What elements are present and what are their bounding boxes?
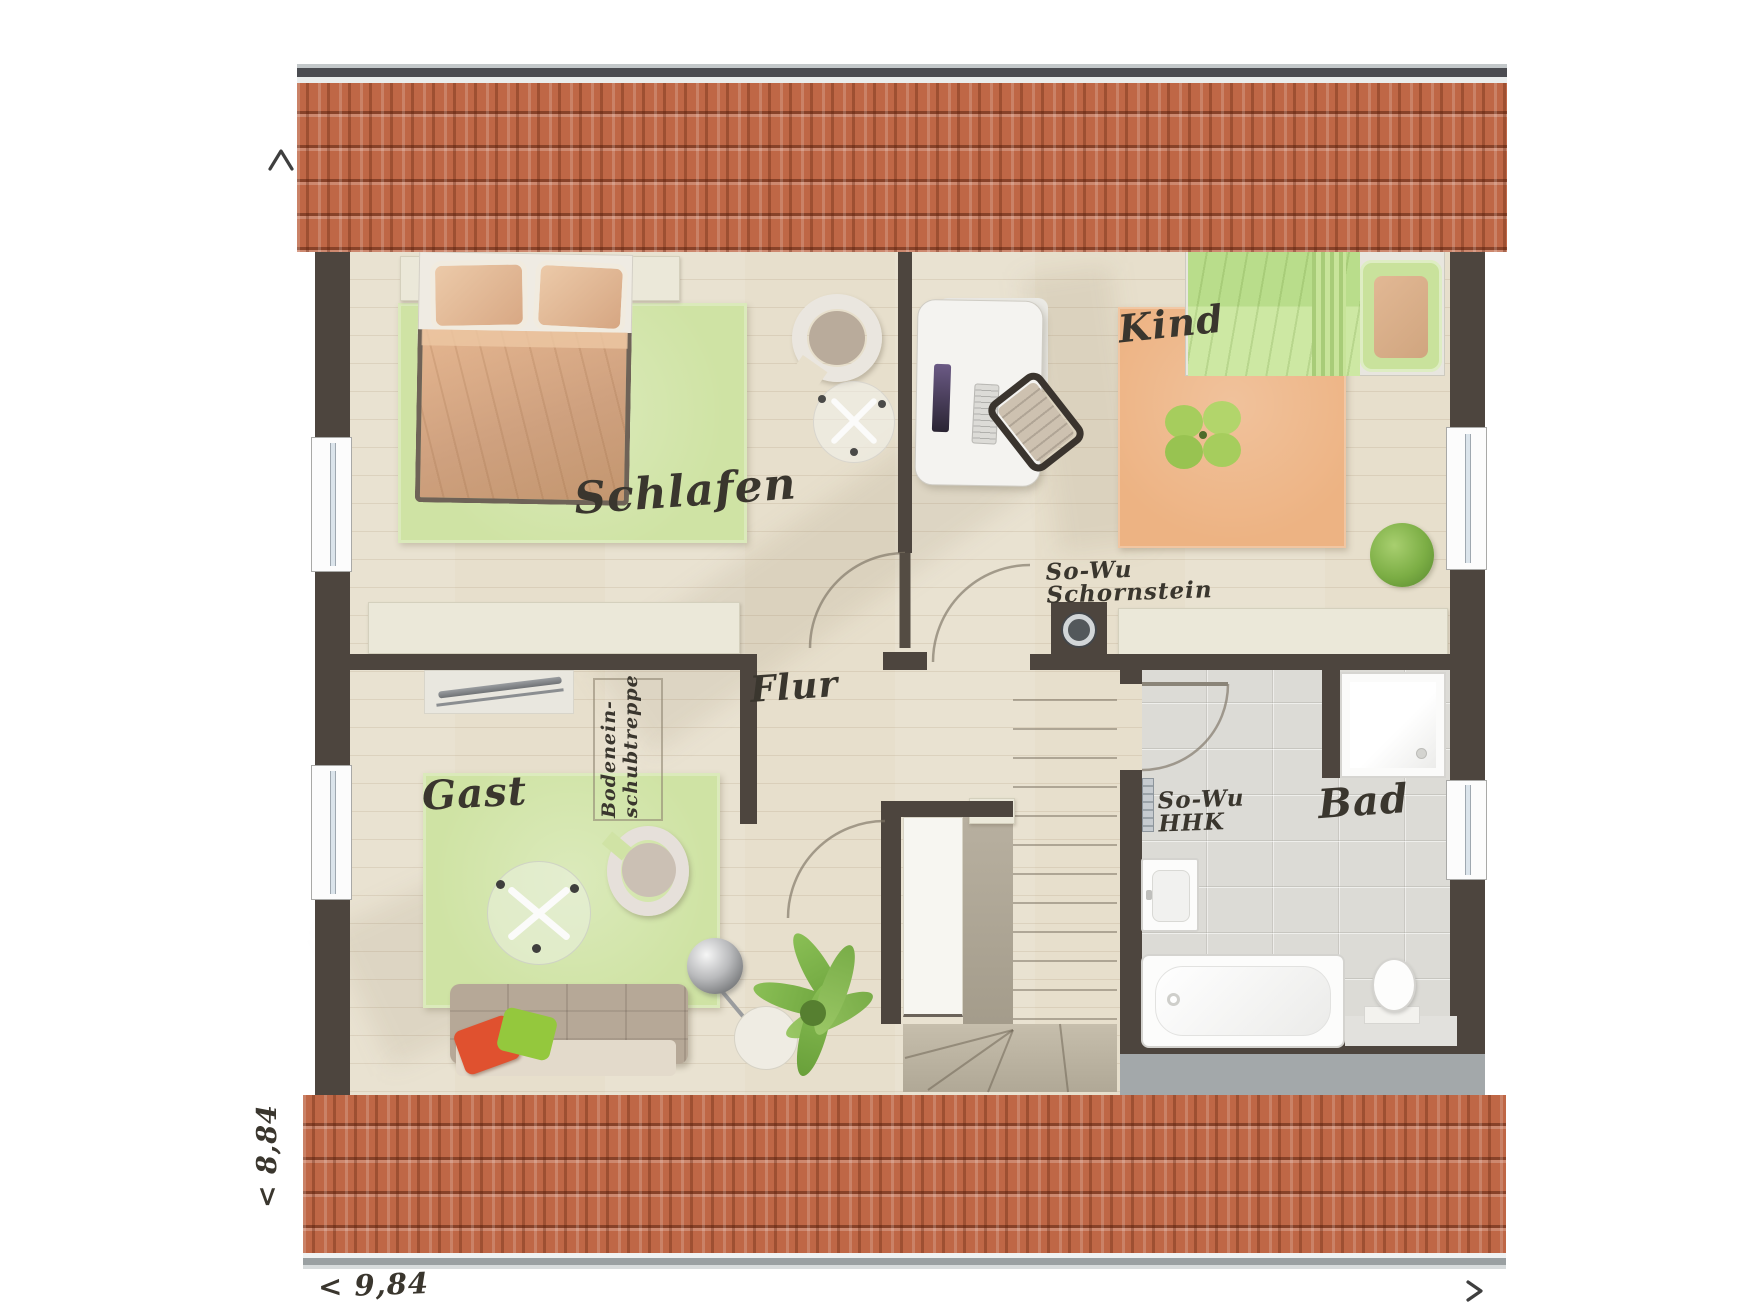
dimension-label-bottom: < 9,84 <box>317 1266 429 1304</box>
winder-line <box>1060 1024 1068 1092</box>
room-label-gast: Gast <box>421 767 528 819</box>
room-label-flur: Flur <box>749 663 840 711</box>
dimension-arrow-right-icon <box>1468 1282 1481 1300</box>
annotation-radiator-line2: HHK <box>1158 809 1246 835</box>
roof-band-top <box>297 64 1507 252</box>
winder-line <box>905 1030 1013 1058</box>
annotation-loft-ladder: Bodenein- schubtreppe <box>598 682 642 818</box>
door-arc-schlafen <box>810 553 905 648</box>
roof-band-bottom <box>303 1095 1506 1271</box>
annotation-loft-ladder-line2: schubtreppe <box>620 682 642 818</box>
gutter-edge <box>303 1265 1506 1269</box>
ridge-bar <box>297 68 1507 77</box>
gutter-bar <box>303 1258 1506 1265</box>
door-arc-bad <box>1142 684 1228 770</box>
roof-tiles-bottom <box>303 1095 1506 1253</box>
annotation-chimney-line2: Schornstein <box>1046 578 1213 607</box>
annotation-radiator: So-Wu HHK <box>1157 786 1245 835</box>
door-arc-gast <box>788 821 885 918</box>
annotation-chimney: So-Wu Schornstein <box>1045 555 1213 607</box>
roof-tiles-top <box>297 83 1507 252</box>
room-label-bad: Bad <box>1316 775 1410 828</box>
dimension-label-left: < 8,84 <box>252 1108 283 1208</box>
floor-plan: Schlafen Kind Gast Bad Flur So-Wu Schorn… <box>0 0 1754 1315</box>
annotation-loft-ladder-line1: Bodenein- <box>598 682 620 818</box>
door-arc-kind <box>933 565 1030 662</box>
dimension-arrow-up-icon <box>270 151 292 169</box>
